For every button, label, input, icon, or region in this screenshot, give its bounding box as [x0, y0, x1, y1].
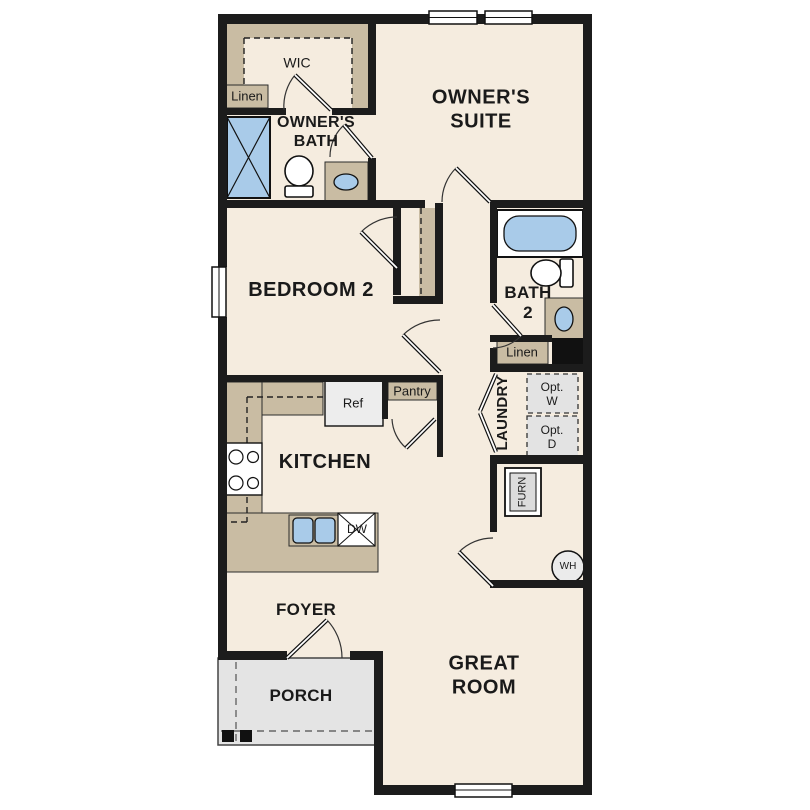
- bathtub: [497, 210, 583, 257]
- bath2-label: BATH 2: [504, 283, 551, 323]
- kitchen-label: KITCHEN: [279, 451, 371, 475]
- porch-label: PORCH: [270, 686, 333, 706]
- window-great-room: [455, 784, 512, 797]
- water-heater-label: WH: [560, 561, 577, 573]
- floor-plan-drawing: [0, 0, 810, 810]
- linen-upper-label: Linen: [231, 88, 263, 103]
- opt-dryer-label: Opt. D: [541, 423, 564, 451]
- shower: [227, 117, 270, 198]
- opt-washer-label: Opt. W: [541, 380, 564, 408]
- pantry-label: Pantry: [393, 383, 431, 398]
- stove: [226, 443, 262, 495]
- floor-plan: WIC Linen OWNER'S BATH OWNER'S SUITE BED…: [0, 0, 810, 810]
- linen-lower-label: Linen: [506, 344, 538, 359]
- owners-suite-label: OWNER'S SUITE: [432, 86, 530, 133]
- toilet-owners-bath: [285, 156, 313, 197]
- window-bedroom2: [212, 267, 226, 317]
- porch-post: [222, 730, 234, 742]
- wic-label: WIC: [283, 55, 310, 72]
- great-room-label: GREAT ROOM: [448, 652, 519, 699]
- furnace-label: FURN: [517, 477, 530, 508]
- dishwasher-label: DW: [347, 522, 367, 536]
- sink-owners-bath: [334, 174, 358, 190]
- window-owners-suite-1: [429, 11, 477, 24]
- foyer-label: FOYER: [276, 600, 336, 620]
- wall-block: [552, 338, 583, 364]
- porch-post: [240, 730, 252, 742]
- kitchen-sink: [289, 515, 338, 546]
- bedroom2-label: BEDROOM 2: [248, 279, 374, 303]
- window-owners-suite-2: [485, 11, 532, 24]
- fridge-label: Ref: [343, 395, 363, 410]
- laundry-label: LAUNDRY: [494, 376, 512, 451]
- owners-bath-label: OWNER'S BATH: [277, 114, 355, 152]
- sink-bath2: [555, 307, 573, 331]
